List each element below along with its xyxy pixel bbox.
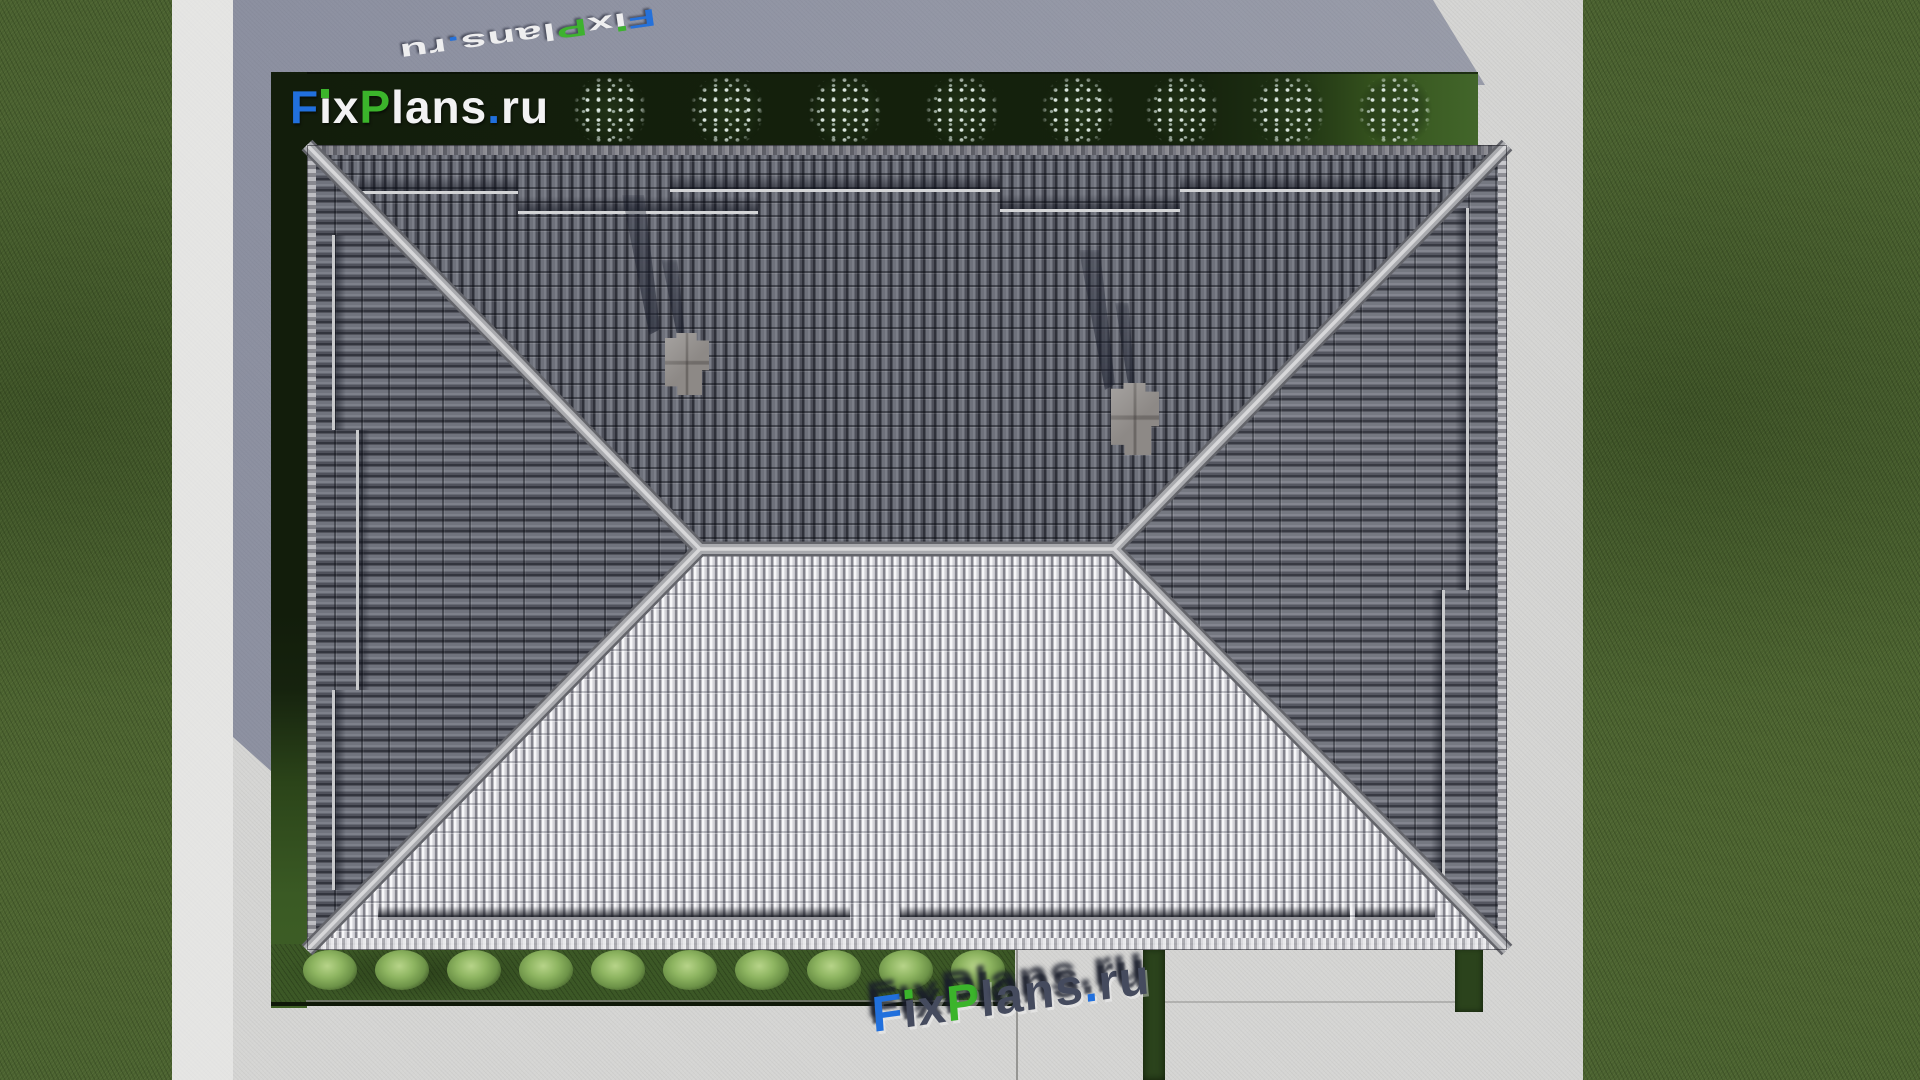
logo-letter: n xyxy=(1022,964,1057,1018)
garden-bush xyxy=(447,950,501,990)
flower-shrub xyxy=(1249,75,1327,146)
logo-letter: P xyxy=(359,84,391,130)
garden-bush xyxy=(735,950,789,990)
flower-shrub xyxy=(806,75,884,146)
flower-shrub xyxy=(571,75,649,146)
logo-letter: F xyxy=(290,84,319,130)
logo-letter: r xyxy=(501,84,520,130)
logo-letter: s xyxy=(1053,960,1085,1014)
flower-shrub xyxy=(1356,75,1434,146)
logo-letter: x xyxy=(916,980,948,1034)
logo-letter: . xyxy=(487,84,501,130)
logo-letter: l xyxy=(391,84,405,130)
flower-shrub xyxy=(688,75,766,146)
grass-band-right xyxy=(1583,0,1920,1080)
i-tittle-dot xyxy=(904,989,913,999)
garden-bush xyxy=(375,950,429,990)
garden-bush xyxy=(591,950,645,990)
logo-letter: a xyxy=(405,84,432,130)
hedge-left xyxy=(271,72,307,1008)
i-tittle-dot xyxy=(321,89,329,98)
logo-letter: P xyxy=(554,15,589,43)
logo-letter: a xyxy=(514,21,544,48)
logo-letter: u xyxy=(1117,951,1152,1005)
garden-bush xyxy=(303,950,357,990)
logo-letter: P xyxy=(945,975,983,1030)
logo-letter: x xyxy=(333,84,360,130)
garden-bush xyxy=(807,950,861,990)
hipped-roof xyxy=(307,145,1507,950)
logo-letter: s xyxy=(459,29,489,56)
garden-bush xyxy=(663,950,717,990)
logo-letter: F xyxy=(625,5,657,33)
left-walkway xyxy=(172,0,233,1080)
logo-letter: n xyxy=(432,84,461,130)
grass-band-left xyxy=(0,0,172,1080)
logo-letter: x xyxy=(585,11,615,38)
grass-patch-right xyxy=(1455,948,1483,1012)
paving-seam xyxy=(1165,1001,1455,1003)
garden-bush xyxy=(519,950,573,990)
ridge-lines xyxy=(307,145,1507,950)
brand-logo: FıxPlans.ru xyxy=(290,84,549,130)
site-plan-render: FıxPlans.ru FıxPlans.ru FıxPlans.ru xyxy=(0,0,1920,1080)
logo-letter: F xyxy=(870,986,905,1040)
logo-letter: n xyxy=(485,25,517,53)
flower-shrub xyxy=(1039,75,1117,146)
i-tittle-dot xyxy=(618,26,627,32)
logo-letter: a xyxy=(994,969,1026,1023)
flower-shrub xyxy=(1143,75,1221,146)
logo-letter: u xyxy=(520,84,549,130)
flower-shrub xyxy=(923,75,1001,146)
logo-letter: r xyxy=(426,35,448,61)
logo-letter: u xyxy=(398,37,430,65)
logo-letter: s xyxy=(461,84,488,130)
logo-letter: ı xyxy=(319,84,333,130)
